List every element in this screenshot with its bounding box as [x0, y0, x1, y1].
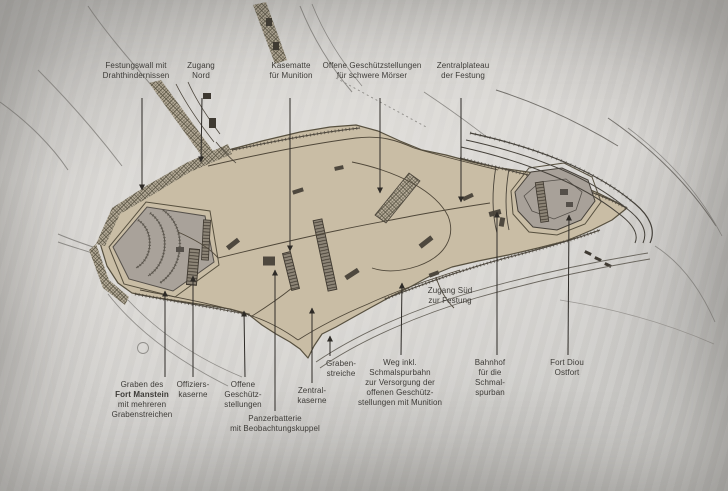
pointer-weg-schmalspurbahn [401, 283, 402, 355]
fortress-map-figure: Festungswall mit Drahthindernissen Zugan… [0, 0, 728, 491]
label-offene-geschuetz: Offene Geschütz- stellungen [213, 380, 273, 410]
label-zentralplateau: Zentralplateau der Festung [403, 61, 523, 81]
label-bahnhof: Bahnhof für die Schmal- spurban [455, 358, 525, 398]
label-zugang-nord: Zugang Nord [161, 61, 241, 81]
pointer-offene-geschuetz [244, 311, 245, 377]
label-weg-schmalspurbahn: Weg inkl. Schmalspurbahn zur Versorgung … [340, 358, 460, 408]
label-panzerbatterie: Panzerbatterie mit Beobachtungskuppel [215, 414, 335, 434]
north-approach-road [149, 2, 287, 163]
label-zentralkaserne: Zentral- kaserne [282, 386, 342, 406]
label-fort-diou: Fort Diou Ostfort [532, 358, 602, 378]
label-zugang-sued: Zugang Süd zur Festung [410, 286, 490, 306]
